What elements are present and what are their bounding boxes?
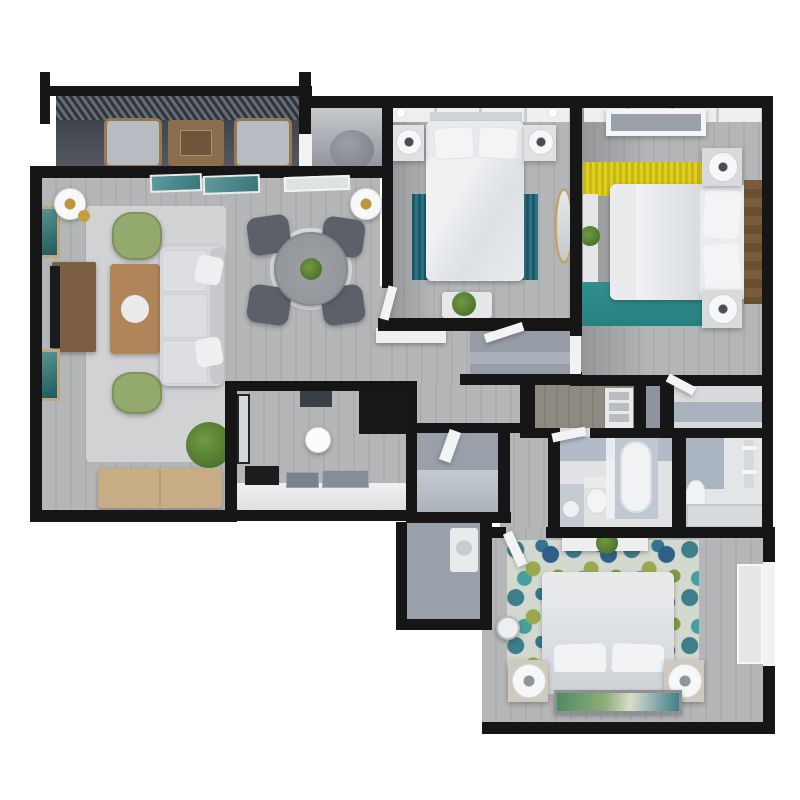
wall-bath-divider (672, 428, 686, 537)
balcony-roof-hatch (56, 94, 300, 120)
kitchen-mirror (237, 394, 250, 464)
kitchen-pendant-lamp (305, 427, 331, 453)
wall-stub-left (40, 72, 50, 124)
balcony-chair-right (234, 118, 292, 168)
sofa-pillow-2 (194, 336, 224, 368)
bedroom2-pillow-bottom (702, 243, 741, 293)
storage-bench-divider (159, 470, 161, 506)
wall-closet-upper-right (498, 423, 510, 522)
bedroom3-artwork (554, 690, 682, 714)
wall-bedroom12-shared (570, 96, 582, 336)
bedroom1-duvet (426, 158, 524, 280)
ceiling-light-1 (396, 108, 406, 118)
hall-closet-shelf (470, 352, 570, 364)
wall-bedroom3-top-b (546, 527, 775, 538)
bedroom1-lamp-right (528, 129, 554, 155)
wall-balcony-parapet (44, 86, 312, 96)
ceiling-light-2 (548, 108, 558, 118)
bedroom3-pillow-left (553, 643, 606, 675)
wall-left (30, 166, 42, 522)
wall-bedroom1-left (382, 96, 393, 288)
wall-closet-a-left (520, 375, 535, 438)
armchair-green-bottom (112, 372, 162, 414)
bedroom2-headboard (744, 180, 762, 304)
tv-screen (50, 266, 60, 348)
wall-bedroom3-top-a (482, 527, 506, 538)
bedroom1-pillow-right (477, 126, 519, 160)
wall-living-bottom (30, 510, 237, 522)
wall-kitchen-top (225, 381, 417, 391)
balcony-table-tray (180, 130, 212, 156)
bedroom2-lamp-bottom (708, 294, 738, 324)
kitchen-sink (286, 472, 319, 488)
wall-laundry-left (396, 522, 407, 630)
closet-a-cubby-holes (609, 392, 629, 424)
bedroom2-door (570, 336, 581, 374)
bath1-sink (562, 500, 580, 518)
wall-bedroom1-bottom (378, 318, 572, 331)
bedroom1-lamp-left (396, 129, 422, 155)
bedroom2-lamp-top (708, 152, 738, 182)
wall-hall-bath1 (548, 428, 560, 537)
laundry-washer-door (456, 540, 472, 556)
kitchen-cooktop (245, 466, 279, 485)
kitchen-hood (300, 389, 332, 407)
wall-right (762, 96, 773, 537)
bedroom2-skylight (606, 109, 706, 136)
coffee-table-doily (121, 295, 149, 323)
wall-kitchen-right (406, 381, 417, 522)
bedroom2-pillow-top (702, 189, 741, 239)
bath1-tub (620, 441, 652, 513)
bath2-towel-bar-2 (742, 470, 756, 474)
bath2-shower-tray (686, 504, 764, 528)
wall-living-kitchen (225, 383, 237, 522)
kitchen-counter (235, 483, 407, 511)
bedroom3-window-inner (737, 564, 763, 664)
wall-top-main (299, 96, 772, 108)
bedroom3-side-table (496, 616, 520, 640)
bath2-towel-bar-1 (742, 446, 756, 450)
bath1-shower-curtain (606, 437, 615, 519)
armchair-green-top (112, 212, 162, 260)
wall-laundry-bottom (396, 619, 492, 630)
bedroom1-bench-plant (452, 292, 476, 316)
bedroom3-window-outer (763, 562, 775, 666)
bedroom3-lamp-left (512, 664, 546, 698)
wall-closet-ab-divider (634, 375, 646, 438)
bedroom2-blanket (636, 184, 700, 300)
wall-closet-upper-bottom (406, 512, 511, 523)
bedroom1-pillow-left (433, 126, 475, 160)
floor-lamp-gold (78, 210, 90, 222)
window-sill-panel (284, 175, 350, 192)
balcony-chair-left (104, 118, 162, 168)
wall-hallcloset-bottom (460, 374, 572, 385)
wall-laundry-right (480, 522, 492, 630)
alcove-beanbag (330, 130, 374, 170)
bedroom3-pillow-right (611, 643, 664, 675)
bedroom2-plant (580, 226, 600, 246)
sofa-cushion-2 (162, 294, 208, 338)
kitchen-fridge (359, 389, 407, 434)
wall-stub-mid (299, 72, 311, 134)
pendant-lamp-right (350, 188, 382, 220)
bath1-toilet-bowl (586, 488, 608, 514)
wall-kitchen-bottom (225, 510, 417, 521)
window-glass-door-1 (150, 173, 203, 193)
wall-bedroom3-bottom (482, 722, 775, 734)
window-glass-door-2 (203, 174, 261, 195)
floor-plan (0, 0, 800, 800)
closet-c-counter (664, 402, 762, 422)
kitchen-appliance (322, 470, 369, 488)
wall-white-band-alcove (299, 134, 312, 170)
dining-centerpiece-plant (300, 258, 322, 280)
